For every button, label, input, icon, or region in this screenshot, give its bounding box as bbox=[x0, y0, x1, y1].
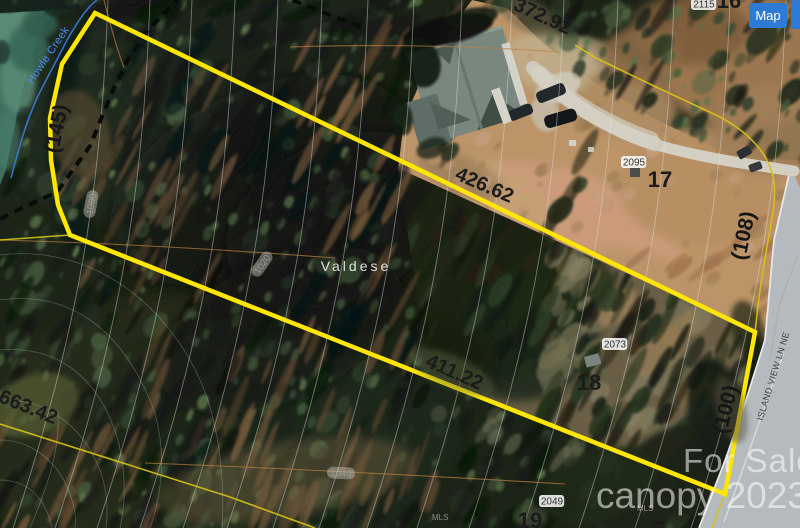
svg-text:MLS: MLS bbox=[432, 513, 448, 522]
svg-text:2115: 2115 bbox=[693, 0, 715, 11]
svg-text:19: 19 bbox=[518, 508, 542, 528]
svg-text:17: 17 bbox=[648, 167, 672, 192]
svg-text:2073: 2073 bbox=[604, 340, 627, 351]
svg-text:Valdese: Valdese bbox=[321, 258, 392, 274]
svg-text:1040: 1040 bbox=[330, 468, 352, 480]
svg-text:2049: 2049 bbox=[541, 497, 564, 508]
svg-text:16: 16 bbox=[717, 0, 741, 13]
svg-text:MLS: MLS bbox=[637, 504, 653, 513]
svg-text:For Sale: For Sale bbox=[683, 442, 800, 479]
svg-text:18: 18 bbox=[577, 370, 601, 395]
svg-text:2095: 2095 bbox=[623, 158, 646, 169]
svg-text:Map: Map bbox=[755, 8, 780, 23]
svg-text:canopy 2023: canopy 2023 bbox=[596, 475, 800, 516]
